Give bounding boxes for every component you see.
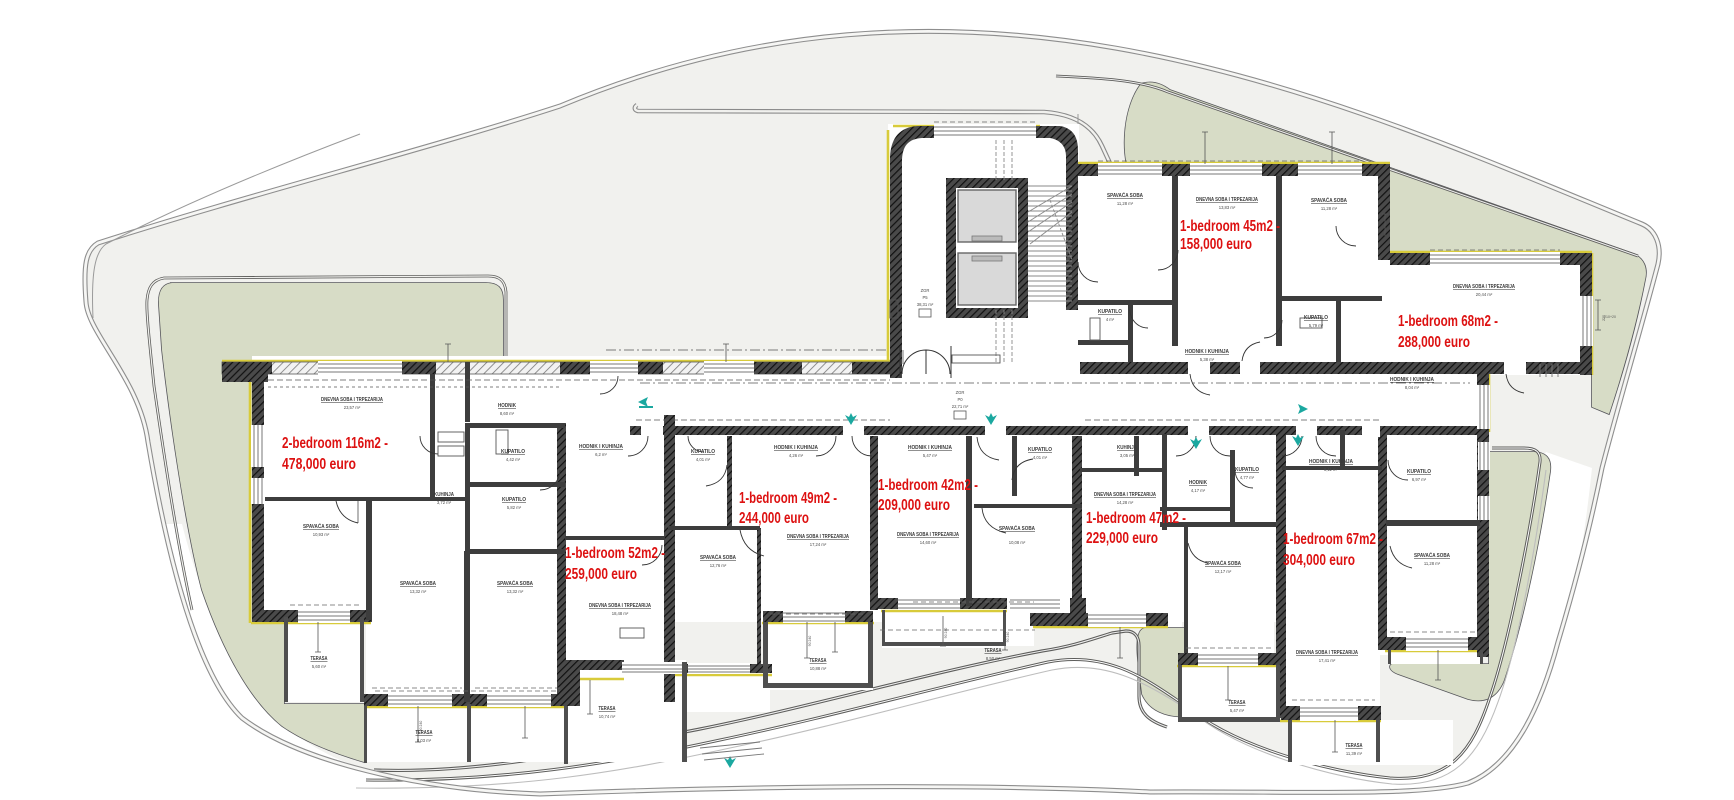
svg-text:KUPATILO: KUPATILO [1407,469,1432,475]
svg-text:SPAVAĆA SOBA: SPAVAĆA SOBA [700,553,736,561]
svg-text:5,82 m²: 5,82 m² [507,505,522,510]
svg-text:TERASA: TERASA [416,730,433,736]
svg-text:KUPATILO: KUPATILO [1304,315,1329,321]
svg-text:4 m²: 4 m² [1106,317,1115,322]
svg-text:1-bedroom 68m2 -: 1-bedroom 68m2 - [1398,313,1498,330]
svg-text:HODNIK I KUHINJA: HODNIK I KUHINJA [1390,377,1434,383]
svg-text:KUPATILO: KUPATILO [1235,467,1260,473]
svg-text:14,60 m²: 14,60 m² [920,540,937,545]
svg-text:210+20: 210+20 [1604,315,1616,319]
svg-text:TERASA: TERASA [985,648,1002,654]
svg-text:90 240: 90 240 [944,628,948,639]
svg-text:DNEVNA SOBA I TRPEZARIJA: DNEVNA SOBA I TRPEZARIJA [1094,492,1156,498]
svg-text:10,08 m²: 10,08 m² [1009,540,1026,545]
svg-text:4,42 m²: 4,42 m² [506,457,521,462]
svg-text:HODNIK: HODNIK [498,403,516,409]
svg-text:8,03 m²: 8,03 m² [417,738,432,743]
svg-text:38,31 m²: 38,31 m² [917,302,934,307]
svg-text:KUPATILO: KUPATILO [501,449,526,455]
svg-text:10,74 m²: 10,74 m² [599,714,616,719]
svg-text:8,11 m²: 8,11 m² [1324,467,1338,472]
svg-text:TERASA: TERASA [1229,700,1246,706]
svg-text:158,000 euro: 158,000 euro [1180,236,1252,253]
svg-text:1-bedroom 45m2 -: 1-bedroom 45m2 - [1180,218,1280,235]
svg-text:12,76 m²: 12,76 m² [710,563,727,568]
svg-text:KUPATILO: KUPATILO [691,449,716,455]
svg-text:17,24 m²: 17,24 m² [810,542,827,547]
svg-text:2-bedroom 116m2 -: 2-bedroom 116m2 - [282,435,388,452]
svg-text:3,05 m²: 3,05 m² [1120,453,1135,458]
svg-text:1-bedroom 67m2 -: 1-bedroom 67m2 - [1283,531,1383,548]
svg-text:SPAVAĆA SOBA: SPAVAĆA SOBA [1107,191,1143,199]
svg-text:SPAVAĆA SOBA: SPAVAĆA SOBA [1414,551,1450,559]
svg-text:8,60 m²: 8,60 m² [500,411,515,416]
svg-text:1-bedroom 42m2 -: 1-bedroom 42m2 - [878,477,978,494]
svg-text:SPAVAĆA SOBA: SPAVAĆA SOBA [303,522,339,530]
svg-text:TERASA: TERASA [311,656,328,662]
svg-text:90 240: 90 240 [1006,632,1010,643]
svg-text:6,2 m²: 6,2 m² [595,452,607,457]
svg-text:P0: P0 [957,397,963,402]
svg-text:5,38 m²: 5,38 m² [1200,357,1215,362]
svg-text:HODNIK I KUHINJA: HODNIK I KUHINJA [1185,349,1229,355]
svg-text:18,48 m²: 18,48 m² [612,611,629,616]
svg-text:DNEVNA SOBA I TRPEZARIJA: DNEVNA SOBA I TRPEZARIJA [589,603,651,609]
svg-text:4,01 m²: 4,01 m² [1033,455,1048,460]
svg-text:KUPATILO: KUPATILO [502,497,527,503]
svg-text:23,57 m²: 23,57 m² [344,405,361,410]
svg-text:90 240: 90 240 [808,636,812,647]
svg-text:4,26 m²: 4,26 m² [789,453,804,458]
svg-text:HODNIK I KUHINJA: HODNIK I KUHINJA [1309,459,1353,465]
svg-text:DNEVNA SOBA I TRPEZARIJA: DNEVNA SOBA I TRPEZARIJA [897,532,959,538]
svg-text:DNEVNA SOBA I TRPEZARIJA: DNEVNA SOBA I TRPEZARIJA [1296,650,1358,656]
svg-text:5,79 m²: 5,79 m² [1309,323,1324,328]
svg-text:11,28 m²: 11,28 m² [1424,561,1441,566]
svg-text:17,41 m²: 17,41 m² [1319,658,1336,663]
svg-text:SPAVAĆA SOBA: SPAVAĆA SOBA [497,579,533,587]
svg-text:22,71 m²: 22,71 m² [952,404,969,409]
svg-text:3,72 m²: 3,72 m² [437,500,452,505]
svg-text:SPAVAĆA SOBA: SPAVAĆA SOBA [400,579,436,587]
svg-text:14,28 m²: 14,28 m² [1117,500,1134,505]
svg-text:KUPATILO: KUPATILO [1098,309,1123,315]
svg-text:4,01 m²: 4,01 m² [696,457,711,462]
svg-text:11,28 m²: 11,28 m² [1117,201,1134,206]
svg-text:8,50 m²: 8,50 m² [986,656,1001,661]
svg-text:6,97 m²: 6,97 m² [1412,477,1427,482]
svg-text:304,000 euro: 304,000 euro [1283,552,1355,569]
svg-text:11,39 m²: 11,39 m² [1346,751,1363,756]
svg-text:ZGR: ZGR [956,390,965,395]
svg-text:HODNIK: HODNIK [1189,480,1207,486]
svg-text:12,17 m²: 12,17 m² [1215,569,1232,574]
svg-text:TERASA: TERASA [810,658,827,664]
svg-text:478,000 euro: 478,000 euro [282,456,356,473]
svg-text:1-bedroom 47m2 -: 1-bedroom 47m2 - [1086,510,1186,527]
svg-text:SPAVAĆA SOBA: SPAVAĆA SOBA [999,524,1035,532]
svg-text:13,32 m²: 13,32 m² [410,589,427,594]
svg-text:DNEVNA SOBA I TRPEZARIJA: DNEVNA SOBA I TRPEZARIJA [321,397,383,403]
svg-text:5,47 m²: 5,47 m² [1230,708,1245,713]
svg-text:5,47 m²: 5,47 m² [923,453,938,458]
svg-text:DNEVNA SOBA I TRPEZARIJA: DNEVNA SOBA I TRPEZARIJA [787,534,849,540]
svg-text:229,000 euro: 229,000 euro [1086,530,1158,547]
svg-text:8,04 m²: 8,04 m² [1405,385,1420,390]
svg-text:4,17 m²: 4,17 m² [1191,488,1206,493]
svg-text:244,000 euro: 244,000 euro [739,510,809,527]
svg-text:10,88 m²: 10,88 m² [810,666,827,671]
svg-text:KUPATILO: KUPATILO [1028,447,1053,453]
svg-text:209,000 euro: 209,000 euro [878,497,950,514]
svg-text:13,32 m²: 13,32 m² [507,589,524,594]
svg-text:SPAVAĆA SOBA: SPAVAĆA SOBA [1311,196,1347,204]
svg-text:1-bedroom 52m2 -: 1-bedroom 52m2 - [565,545,665,562]
svg-text:P5: P5 [922,295,928,300]
svg-text:ZGR: ZGR [921,288,930,293]
svg-text:5,60 m²: 5,60 m² [312,664,327,669]
svg-text:TERASA: TERASA [1346,743,1363,749]
svg-text:259,000 euro: 259,000 euro [565,566,637,583]
svg-text:4,77 m²: 4,77 m² [1240,475,1255,480]
svg-text:288,000 euro: 288,000 euro [1398,334,1470,351]
svg-text:11,28 m²: 11,28 m² [1321,206,1338,211]
svg-text:KUHINJA: KUHINJA [434,492,454,498]
svg-text:13,83 m²: 13,83 m² [1219,205,1236,210]
svg-text:DNEVNA SOBA I TRPEZARIJA: DNEVNA SOBA I TRPEZARIJA [1196,197,1258,203]
svg-text:KUHINJA: KUHINJA [1117,445,1137,451]
svg-text:DNEVNA SOBA I TRPEZARIJA: DNEVNA SOBA I TRPEZARIJA [1453,284,1515,290]
svg-text:HODNIK I KUHINJA: HODNIK I KUHINJA [908,445,952,451]
svg-text:TERASA: TERASA [599,706,616,712]
svg-text:SPAVAĆA SOBA: SPAVAĆA SOBA [1205,559,1241,567]
svg-text:20,44 m²: 20,44 m² [1476,292,1493,297]
svg-text:1-bedroom 49m2 -: 1-bedroom 49m2 - [739,490,837,507]
svg-text:HODNIK I KUHINJA: HODNIK I KUHINJA [579,444,623,450]
svg-text:HODNIK I KUHINJA: HODNIK I KUHINJA [774,445,818,451]
svg-text:10,93 m²: 10,93 m² [313,532,330,537]
